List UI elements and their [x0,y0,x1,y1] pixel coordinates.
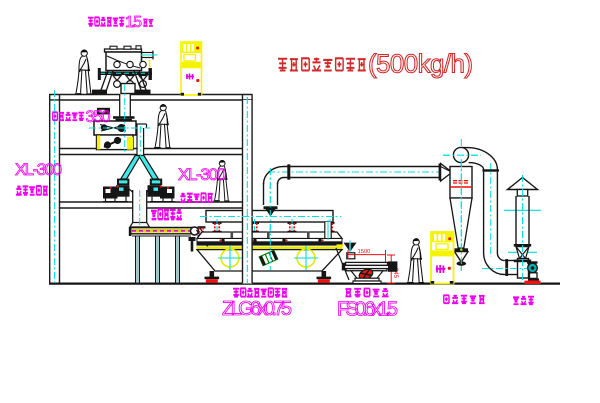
svg-text:1500: 1500 [358,249,371,255]
svg-text:XL-300: XL-300 [178,165,226,184]
svg-text:ZLG6x0.75: ZLG6x0.75 [222,298,292,320]
svg-text:350: 350 [86,108,111,126]
svg-text:(500kg/h): (500kg/h) [368,49,473,79]
svg-text:FS0.6x1.5: FS0.6x1.5 [337,299,398,321]
svg-text:1.5: 1.5 [125,14,142,31]
svg-text:XL-300: XL-300 [15,160,62,179]
